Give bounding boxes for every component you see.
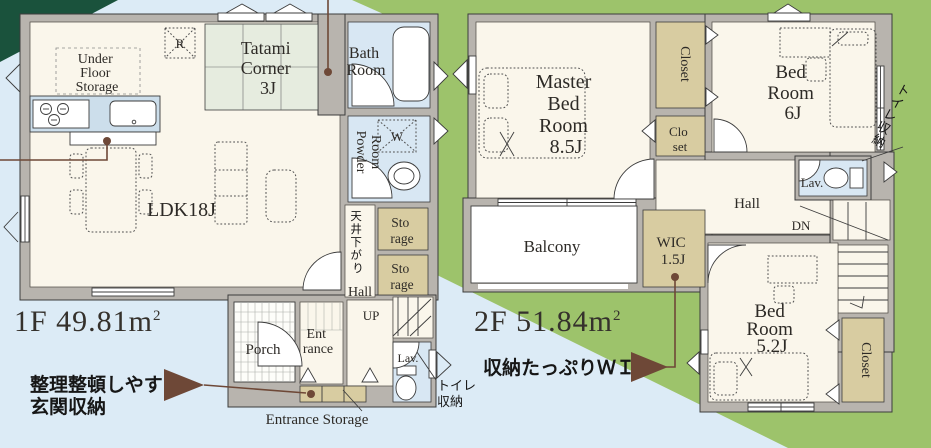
callout-dot-genkan bbox=[307, 390, 315, 398]
label-lav-1f: Lav. bbox=[398, 351, 419, 365]
callout-dot-tatami bbox=[324, 68, 332, 76]
label-bath: Bath Room bbox=[346, 45, 386, 79]
label-wic: WIC 1.5J bbox=[657, 235, 690, 268]
label-hall-2f: Hall bbox=[734, 196, 760, 212]
label-under-floor-storage: Under Floor Storage bbox=[76, 52, 119, 95]
vent-base bbox=[218, 13, 264, 21]
kitchen-island bbox=[70, 132, 156, 145]
label-lav-2f: Lav. bbox=[801, 175, 824, 190]
label-balcony: Balcony bbox=[524, 237, 581, 256]
label-fridge: R bbox=[176, 36, 185, 51]
label-entrance-storage: Entrance Storage bbox=[266, 412, 369, 428]
label-powder-2: Room bbox=[368, 135, 383, 169]
label-hall-1f: Hall bbox=[348, 285, 372, 300]
callout-dot-wic bbox=[671, 273, 679, 281]
label-dn: DN bbox=[792, 218, 811, 233]
sink-icon bbox=[110, 101, 156, 126]
window-lav-1f bbox=[429, 350, 436, 378]
powder-sink-icon bbox=[388, 162, 420, 190]
vent-base bbox=[768, 13, 810, 21]
label-storage-2: Sto rage bbox=[390, 261, 413, 292]
floorplan-svg: Under Floor Storage R Tatami Corner 3J B… bbox=[0, 0, 931, 448]
vent-base bbox=[266, 13, 312, 21]
area-label-1f: 1F 49.81m2 bbox=[14, 305, 162, 338]
label-ceiling-drop: 天 井 下 が り bbox=[350, 209, 365, 275]
window-master-west bbox=[469, 56, 476, 94]
floorplan-canvas: Under Floor Storage R Tatami Corner 3J B… bbox=[0, 0, 931, 448]
callout-wic: 収納たっぷりＷＩＣ bbox=[483, 356, 654, 379]
label-storage-1: Sto rage bbox=[390, 215, 413, 246]
label-ldk: LDK18J bbox=[147, 199, 216, 221]
label-closet-a: Closet bbox=[677, 46, 692, 82]
toilet-icon-1f bbox=[396, 366, 416, 400]
2f-stairs-upper-floor bbox=[833, 200, 890, 240]
toilet-icon-2f bbox=[824, 168, 863, 188]
label-closet-c: Closet bbox=[858, 342, 873, 378]
label-washer: W bbox=[391, 129, 404, 144]
label-powder-1: Powder bbox=[353, 131, 368, 174]
label-up: UP bbox=[363, 308, 380, 323]
area-label-2f: 2F 51.84m2 bbox=[474, 305, 622, 338]
balcony-rail-gap bbox=[478, 284, 628, 289]
callout-dot-kitchen bbox=[103, 137, 111, 145]
1f-wall-stub bbox=[318, 14, 345, 115]
bathtub-icon bbox=[393, 27, 429, 101]
label-entrance: Ent rance bbox=[303, 327, 333, 357]
window-bed52-west bbox=[701, 330, 708, 354]
label-porch: Porch bbox=[246, 342, 281, 358]
